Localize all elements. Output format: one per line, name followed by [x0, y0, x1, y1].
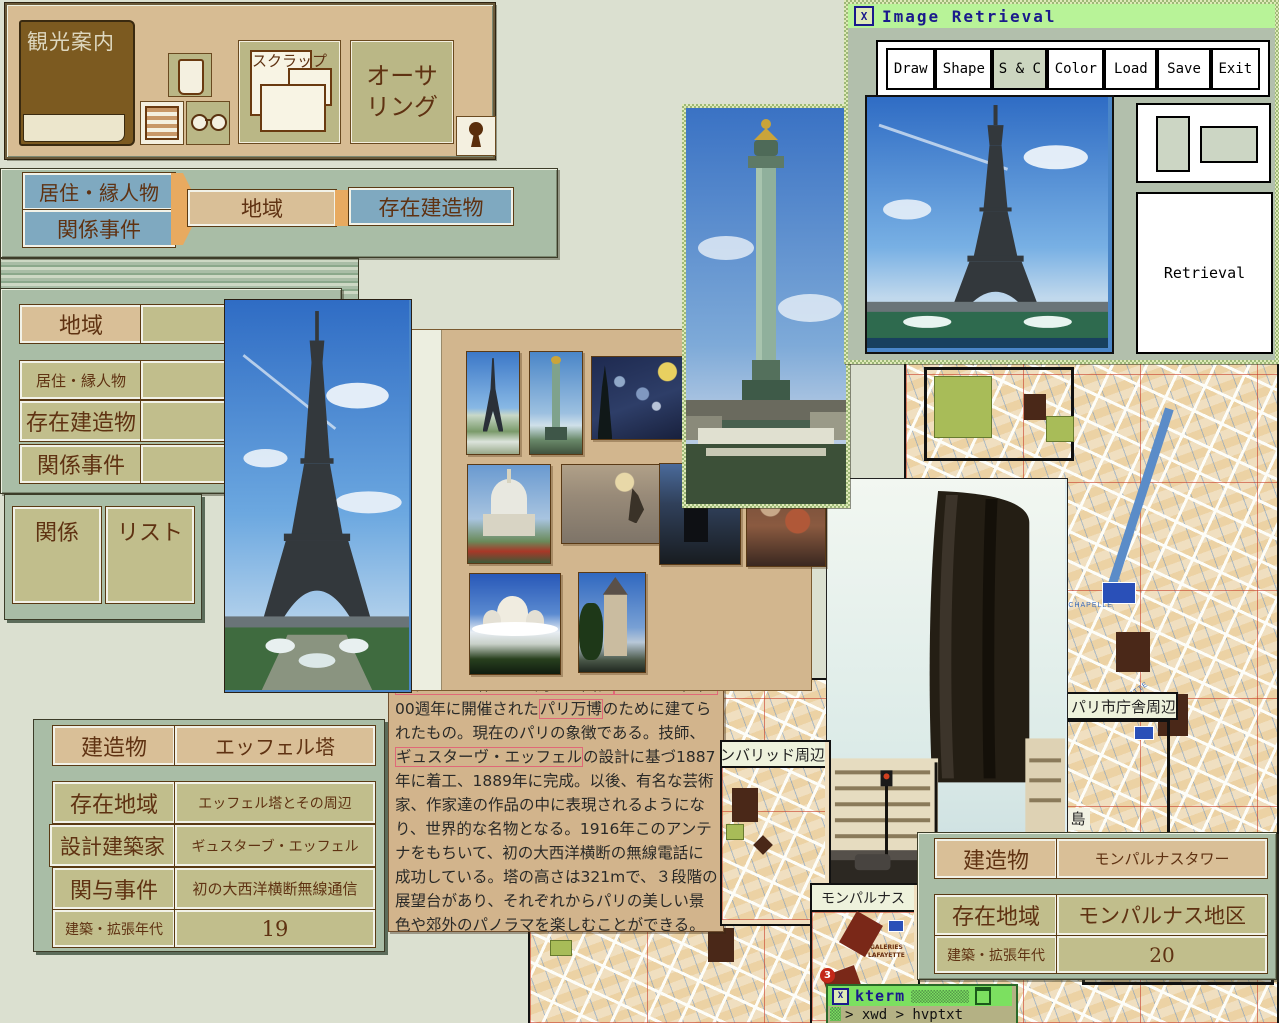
thumbnail-starry-night[interactable] [591, 356, 685, 440]
column-shape [552, 362, 560, 433]
drawer-icon[interactable] [140, 101, 184, 145]
toolbar-window: 観光案内 スクラップ オーサ リング [5, 3, 495, 159]
draw-button[interactable]: Draw [886, 48, 935, 90]
image-retrieval-titlebar[interactable]: X Image Retrieval [848, 4, 1275, 28]
montparnasse-info-window: 建造物 モンパルナスタワー 存在地域 モンパルナス地区 建築・拡張年代 20 [917, 832, 1277, 980]
eiffel-row-label[interactable]: 建築・拡張年代 [53, 910, 175, 947]
map-landmark [708, 928, 734, 962]
text-line: 00週年に開催されたパリ万博のために建てら [395, 697, 717, 721]
store-label: LAFAYETTE [868, 952, 905, 959]
cloud-shape [472, 622, 558, 636]
montparnasse-row-value[interactable]: モンパルナス地区 [1057, 895, 1267, 935]
eiffel-info-window: 建造物 エッフェル塔 存在地域 エッフェル塔とその周辺 設計建築家 ギュスターブ… [33, 719, 385, 952]
spire-shape [603, 577, 628, 595]
map-landmark [753, 835, 773, 855]
list-button[interactable]: リスト [106, 507, 194, 603]
text-line: れたもの。現在のパリの象徴である。技師、 [395, 721, 717, 745]
text-line: り、世界的な名物となる。1916年このアンテ [395, 817, 717, 841]
retrieval-button[interactable]: Retrieval [1136, 192, 1273, 354]
shape-button[interactable]: Shape [935, 48, 992, 90]
exit-button[interactable]: Exit [1211, 48, 1260, 90]
nav-bar-window: 居住・縁人物 関係事件 地域 存在建造物 [0, 168, 558, 258]
map-park [934, 376, 992, 438]
map-landmark [1024, 394, 1046, 420]
nav-buildings-button[interactable]: 存在建造物 [349, 188, 513, 225]
kterm-window[interactable]: X kterm > xwd > hvptxt [826, 984, 1018, 1023]
window-title: kterm [855, 987, 905, 1005]
map-sign [888, 920, 904, 932]
nav-region-button[interactable]: 地域 [188, 190, 336, 226]
map-park [1046, 416, 1074, 442]
eiffel-row-label[interactable]: 建造物 [53, 726, 175, 765]
guide-book-button[interactable]: 観光案内 [19, 20, 135, 146]
retrieval-button-strip: Draw Shape S & C Color Load Save Exit [876, 40, 1270, 97]
panel-residents-button[interactable]: 居住・縁人物 [20, 361, 142, 399]
eiffel-tower-photo [225, 300, 409, 690]
restore-icon[interactable] [975, 987, 991, 1005]
text-line: 展望台があり、それぞれからパリの美しい景 [395, 889, 717, 913]
montparnasse-row-label[interactable]: 存在地域 [935, 895, 1057, 935]
text-line: 成功している。塔の高さは321mで、３段階の [395, 865, 717, 889]
eiffel-row-value[interactable]: 初の大西洋横断無線通信 [175, 868, 375, 909]
text-line: ナをもちいて、初の大西洋横断の無線電話に [395, 841, 717, 865]
hyperlink[interactable]: ギュスターヴ・エッフェル [396, 748, 582, 766]
panel-events-button[interactable]: 関係事件 [20, 445, 142, 483]
x-logo-icon[interactable]: X [832, 988, 849, 1005]
text-line: 家、作家達の作品の中に表現されるようにな [395, 793, 717, 817]
guide-book-label: 観光案内 [27, 26, 115, 56]
dome-shape [491, 479, 527, 518]
image-retrieval-body: X Image Retrieval Draw Shape S & C Color… [848, 4, 1275, 360]
authoring-label: リング [366, 92, 438, 123]
eiffel-row-value[interactable]: 19 [175, 910, 375, 947]
map-label-city-hall[interactable]: パリ市庁舎周辺 [1054, 692, 1178, 720]
nav-connector-2 [335, 190, 348, 226]
figure-shape [625, 488, 644, 523]
eiffel-query-photo [867, 97, 1108, 348]
map-landmark [732, 788, 758, 822]
bastille-photo-window[interactable] [682, 104, 850, 508]
book-page [23, 114, 125, 142]
montparnasse-row-label[interactable]: 建築・拡張年代 [935, 936, 1057, 973]
base-shape [545, 427, 568, 439]
facade-shape [483, 514, 535, 536]
keyhole-icon[interactable] [456, 116, 496, 156]
nav-events-button[interactable]: 関係事件 [23, 210, 175, 247]
thumbnail-st-germain[interactable] [578, 572, 646, 673]
spire-shape [507, 469, 512, 483]
color-button[interactable]: Color [1047, 48, 1104, 90]
authoring-button[interactable]: オーサ リング [351, 41, 453, 143]
montparnasse-row-value[interactable]: モンパルナスタワー [1057, 839, 1267, 878]
card-icon[interactable] [168, 53, 212, 97]
scrap-panel-button[interactable]: スクラップ [239, 41, 340, 143]
text-line: 年に着工、1889年に完成。以後、有名な芸術 [395, 769, 717, 793]
map-park [550, 940, 572, 956]
terminal-cursor [830, 1007, 841, 1021]
titlebar-pattern [911, 990, 969, 1003]
kterm-titlebar[interactable]: X kterm [828, 986, 1012, 1006]
relation-button[interactable]: 関係 [13, 507, 101, 603]
store-label: GALERIES [870, 944, 903, 951]
image-retrieval-window: X Image Retrieval Draw Shape S & C Color… [844, 0, 1279, 364]
window-title: Image Retrieval [882, 7, 1057, 26]
s-and-c-button[interactable]: S & C [992, 48, 1047, 90]
desktop: BOULEVARD DE LA CHAPELLE LAFAYETTE パリ市庁舎… [0, 0, 1279, 1023]
thumbnail-eiffel[interactable] [466, 351, 520, 455]
thumbnail-invalides[interactable] [467, 464, 551, 564]
panel-region-button[interactable]: 地域 [20, 305, 142, 343]
landscape-shape-option[interactable] [1200, 126, 1258, 163]
map-canal [1103, 408, 1173, 601]
text-line: ギュスターヴ・エッフェルの設計に基づ1887 [395, 745, 717, 769]
load-button[interactable]: Load [1104, 48, 1157, 90]
text-line: 色や郊外のパノラマを楽しむことができる。 [395, 913, 717, 932]
bastille-column-photo [686, 108, 846, 504]
eiffel-row-label[interactable]: 関与事件 [53, 868, 175, 909]
map-badge-3[interactable]: 3 [820, 968, 835, 983]
authoring-label: オーサ [366, 61, 438, 92]
nav-residents-button[interactable]: 居住・縁人物 [23, 173, 175, 210]
relation-panel-window: 関係 リスト [4, 494, 202, 620]
terminal-content[interactable]: > xwd > hvptxt [828, 1006, 1012, 1023]
map-sign [1102, 582, 1136, 604]
thumbnail-sower[interactable] [561, 464, 671, 544]
shape-selector-box [1136, 103, 1271, 183]
thumbnail-scrollbar[interactable] [409, 330, 442, 690]
portrait-shape-option[interactable] [1156, 116, 1190, 172]
eiffel-row-value[interactable]: エッフェル塔 [175, 726, 375, 765]
map-label-invalides: アンバリッド周辺 [722, 742, 825, 768]
eiffel-photo-window[interactable] [224, 299, 412, 693]
tower-shape [483, 358, 504, 431]
montparnasse-row-value[interactable]: 20 [1057, 936, 1267, 973]
panel-buildings-button[interactable]: 存在建造物 [20, 401, 142, 441]
thumbnail-sacre-coeur[interactable] [469, 573, 561, 675]
eiffel-row-value[interactable]: ギュスターブ・エッフェル [175, 825, 375, 866]
tree-shape [579, 603, 603, 660]
cypress-shape [598, 365, 613, 439]
glasses-icon[interactable] [186, 101, 230, 145]
hyperlink[interactable]: パリ万博 [540, 700, 602, 718]
montparnasse-row-label[interactable]: 建造物 [935, 839, 1057, 878]
map-label-montparnasse: モンパルナス [812, 885, 914, 912]
query-image[interactable] [865, 95, 1114, 354]
map-island-label: 島 [1066, 808, 1090, 830]
x-logo-icon[interactable]: X [854, 6, 874, 26]
map-landmark [1116, 632, 1150, 672]
eiffel-row-label[interactable]: 設計建築家 [50, 825, 175, 866]
eiffel-row-value[interactable]: エッフェル塔とその周辺 [175, 782, 375, 823]
tower-shape [604, 593, 626, 656]
thumbnail-bastille[interactable] [529, 351, 583, 455]
prompt-text: > xwd > hvptxt [845, 1007, 963, 1023]
map-park [726, 824, 744, 840]
scrap-label: スクラップ [252, 50, 327, 71]
save-button[interactable]: Save [1157, 48, 1210, 90]
eiffel-row-label[interactable]: 存在地域 [53, 782, 175, 823]
